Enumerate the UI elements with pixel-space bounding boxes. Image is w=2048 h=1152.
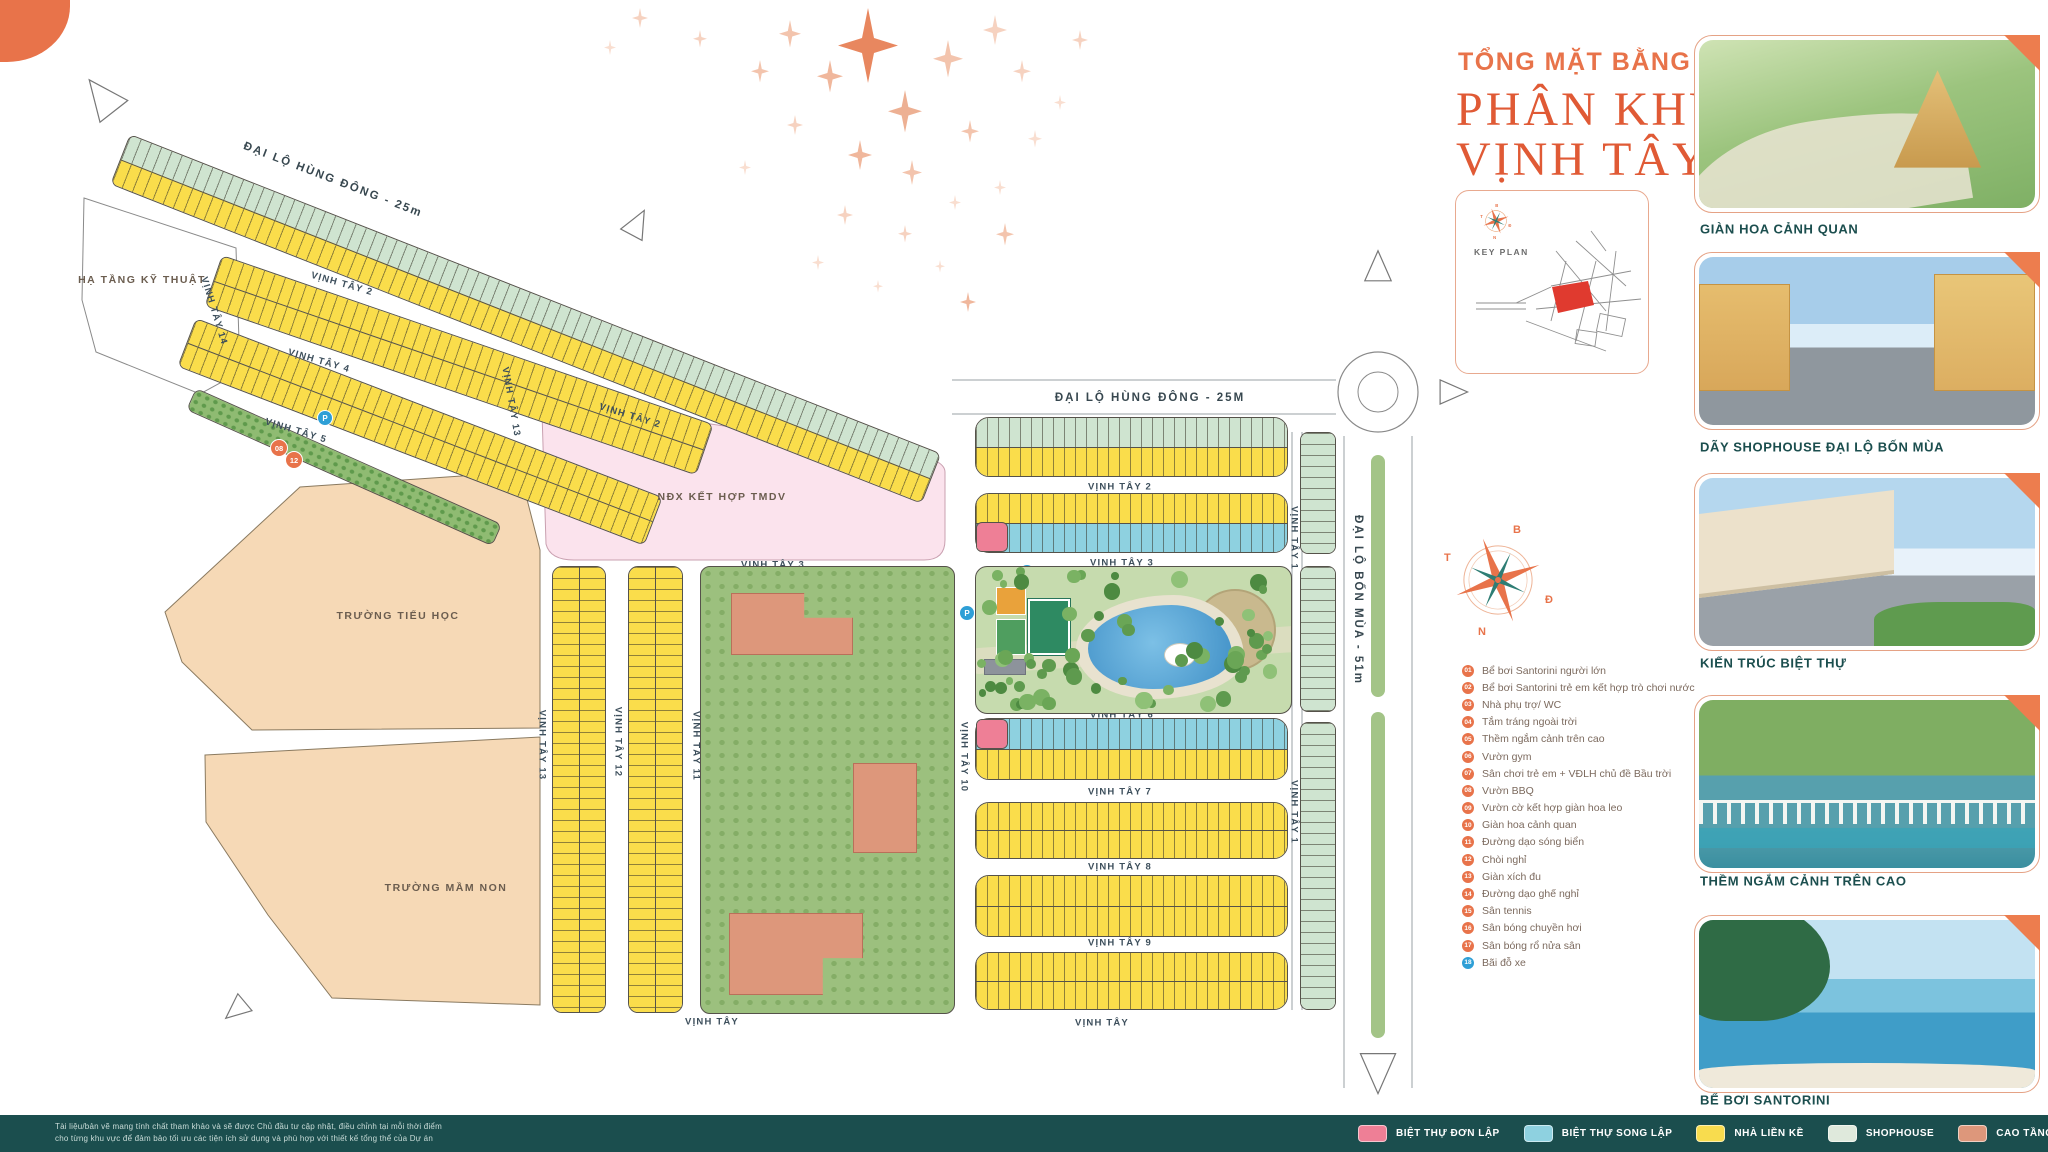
photo-caption: DÃY SHOPHOUSE ĐẠI LỘ BỐN MÙA (1700, 440, 1944, 455)
lot-type-legend-item: BIỆT THỰ SONG LẬP (1524, 1125, 1673, 1142)
key-plan-highlight (1552, 281, 1594, 313)
compass-south-label: N (1478, 626, 1486, 638)
compass-rose (1450, 532, 1546, 628)
corner-triangle-icon (2004, 252, 2040, 288)
lot-row-don (977, 720, 1007, 748)
tree-icon (1037, 669, 1047, 679)
lot-row-song (976, 523, 1287, 553)
tree-icon (1135, 692, 1153, 710)
tree-icon (1259, 585, 1267, 593)
lot-block (976, 719, 1008, 749)
tree-icon (1171, 571, 1188, 588)
street-label: VỊNH TÂY 7 (1088, 787, 1152, 798)
lot-row-lk (976, 981, 1287, 1010)
lot-type-label: NHÀ LIỀN KỀ (1734, 1128, 1803, 1139)
legend-item: 09Vườn cờ kết hợp giàn hoa leo (1462, 800, 1695, 817)
lot-type-swatch (1358, 1125, 1387, 1142)
lot-type-label: CAO TẦNG (1996, 1128, 2048, 1139)
legend-item-number: 02 (1462, 682, 1474, 694)
legend-item-label: Thềm ngắm cảnh trên cao (1482, 733, 1605, 745)
high-rise-building (731, 593, 853, 655)
tree-icon (992, 570, 1003, 581)
tree-icon (1042, 697, 1055, 710)
photo-image (1699, 257, 2035, 425)
photo-art-shape (1699, 920, 1830, 1021)
legend-item: 08Vườn BBQ (1462, 782, 1695, 799)
legend-item: 13Giàn xích đu (1462, 868, 1695, 885)
tree-icon (1263, 664, 1277, 678)
tree-icon (1118, 677, 1126, 685)
photo-card (1694, 35, 2040, 213)
corner-triangle-icon (2004, 695, 2040, 731)
legend-item: 03Nhà phụ trợ/ WC (1462, 696, 1695, 713)
lot-type-swatch (1958, 1125, 1987, 1142)
legend-item-number: 15 (1462, 905, 1474, 917)
photo-image (1699, 920, 2035, 1088)
street-label: VỊNH TÂY 2 (1088, 482, 1152, 493)
area-label: NĐX KẾT HỢP TMDV (657, 491, 786, 503)
lot-block (975, 952, 1288, 1010)
tree-icon (977, 659, 986, 668)
amenity-legend: 01Bể bơi Santorini người lớn02Bể bơi San… (1462, 662, 1695, 971)
lot-block (1300, 722, 1336, 1010)
volleyball-court (996, 587, 1026, 615)
legend-item-number: 12 (1462, 854, 1474, 866)
lot-row-lk (976, 906, 1287, 937)
tree-icon (1247, 629, 1255, 637)
legend-item: 10Giàn hoa cảnh quan (1462, 817, 1695, 834)
tree-icon (1014, 574, 1029, 589)
tree-icon (1104, 583, 1121, 600)
tree-icon (1014, 681, 1025, 692)
legend-item-number: 10 (1462, 819, 1474, 831)
legend-item-number: 11 (1462, 836, 1474, 848)
legend-item-label: Chòi nghỉ (1482, 854, 1526, 866)
compass-west-label: T (1444, 552, 1451, 564)
legend-item: 17Sân bóng rổ nửa sân (1462, 937, 1695, 954)
lot-row-lk (976, 830, 1287, 858)
tree-icon (1111, 572, 1119, 580)
lot-row-don (977, 523, 1007, 551)
legend-item-number: 13 (1462, 871, 1474, 883)
lot-row-lk (976, 494, 1287, 523)
masterplan-poster: VỊNH TÂY 2VỊNH TÂY 4VỊNH TÂY 5VỊNH TÂY 2… (0, 0, 2048, 1152)
legend-item-number: 01 (1462, 665, 1474, 677)
street-label: VỊNH TÂY 9 (1088, 938, 1152, 949)
legend-item-label: Tắm tráng ngoài trời (1482, 716, 1577, 728)
amenity-marker: 08 (270, 439, 288, 457)
lot-type-label: BIỆT THỰ ĐƠN LẬP (1396, 1128, 1500, 1139)
lot-row-lk (553, 567, 579, 1012)
tree-icon (979, 689, 987, 697)
lot-type-legend-item: NHÀ LIỀN KỀ (1696, 1125, 1803, 1142)
lot-row-sh (976, 418, 1287, 447)
lot-type-swatch (1696, 1125, 1725, 1142)
legend-item: 16Sân bóng chuyền hơi (1462, 920, 1695, 937)
tree-icon (1066, 668, 1083, 685)
lot-row-sh (1301, 433, 1335, 553)
photo-art-shape (1699, 490, 1894, 598)
basketball-court (996, 619, 1026, 655)
legend-item: 11Đường dạo sóng biển (1462, 834, 1695, 851)
photo-art-shape (1699, 800, 2035, 825)
lot-type-legend-item: SHOPHOUSE (1828, 1125, 1934, 1142)
lot-row-lk (655, 567, 682, 1012)
disclaimer-line2: cho từng khu vực để đảm bảo tối ưu các t… (55, 1134, 433, 1143)
street-label: VỊNH TÂY 8 (1088, 862, 1152, 873)
photo-card (1694, 915, 2040, 1093)
tree-icon (1242, 609, 1254, 621)
legend-item-label: Đường dạo ghế nghỉ (1482, 888, 1579, 900)
legend-item: 15Sân tennis (1462, 903, 1695, 920)
tree-icon (1262, 644, 1272, 654)
lot-block (1300, 432, 1336, 554)
tree-icon (1006, 677, 1014, 685)
tree-icon (1091, 683, 1101, 693)
photo-image (1699, 700, 2035, 868)
street-label: VỊNH TÂY (685, 1017, 739, 1028)
tree-icon (1019, 694, 1035, 710)
legend-item: 06Vườn gym (1462, 748, 1695, 765)
legend-item-number: 09 (1462, 802, 1474, 814)
legend-item: 14Đường dạo ghế nghỉ (1462, 885, 1695, 902)
poster-eyebrow-title: TỔNG MẶT BẰNG (1458, 48, 1691, 77)
legend-item-label: Bể bơi Santorini trẻ em kết hợp trò chơi… (1482, 682, 1695, 694)
road-label: ĐẠI LỘ BỐN MÙA - 51m (1352, 515, 1364, 685)
corner-triangle-icon (2004, 915, 2040, 951)
lot-row-sh (1301, 723, 1335, 1009)
lot-row-song (976, 719, 1287, 749)
legend-item-label: Giàn xích đu (1482, 871, 1541, 883)
legend-item-number: 05 (1462, 733, 1474, 745)
legend-item: 01Bể bơi Santorini người lớn (1462, 662, 1695, 679)
lot-block (975, 493, 1288, 553)
legend-item-number: 06 (1462, 751, 1474, 763)
legend-item-number: 03 (1462, 699, 1474, 711)
photo-caption: KIẾN TRÚC BIỆT THỰ (1700, 656, 1847, 671)
legend-item-number: 07 (1462, 768, 1474, 780)
lot-row-sh (1301, 567, 1335, 711)
tree-icon (1000, 580, 1008, 588)
key-plan-compass-icon: B Đ N T (1478, 201, 1514, 241)
road-label: ĐẠI LỘ HÙNG ĐÔNG - 25M (1055, 392, 1245, 404)
parking-marker: P (959, 605, 975, 621)
lot-row-lk (976, 803, 1287, 830)
lot-block (976, 522, 1008, 552)
photo-art-shape (1699, 284, 1790, 392)
tennis-court (1028, 599, 1070, 655)
area-label: TRƯỜNG TIỂU HỌC (337, 610, 460, 622)
photo-art-shape (1874, 602, 2035, 646)
street-label: VỊNH TÂY 1 (1289, 780, 1300, 844)
lot-type-legend: BIỆT THỰ ĐƠN LẬPBIỆT THỰ SONG LẬPNHÀ LIỀ… (1358, 1115, 2048, 1152)
legend-item-number: 17 (1462, 940, 1474, 952)
tree-icon (1200, 696, 1216, 712)
legend-item-label: Vườn cờ kết hợp giàn hoa leo (1482, 802, 1622, 814)
legend-item-number: 04 (1462, 716, 1474, 728)
legend-item: 18Bãi đỗ xe (1462, 954, 1695, 971)
street-label: VỊNH TÂY 12 (613, 707, 624, 778)
area-label: TRƯỜNG MẦM NON (385, 882, 508, 894)
legend-item: 02Bể bơi Santorini trẻ em kết hợp trò ch… (1462, 679, 1695, 696)
photo-art-shape (1699, 828, 2035, 848)
lot-row-lk (579, 567, 606, 1012)
photo-image (1699, 478, 2035, 646)
legend-item: 05Thềm ngắm cảnh trên cao (1462, 731, 1695, 748)
tree-icon (985, 681, 996, 692)
lot-type-swatch (1524, 1125, 1553, 1142)
poster-title-line1: PHÂN KHU (1456, 82, 1727, 137)
legend-item-label: Giàn hoa cảnh quan (1482, 819, 1577, 831)
street-label: VỊNH TÂY 13 (537, 710, 548, 781)
legend-item-label: Đường dạo sóng biển (1482, 836, 1584, 848)
photo-caption: THỀM NGẮM CẢNH TRÊN CAO (1700, 874, 1907, 889)
high-rise-building (853, 763, 917, 853)
tree-icon (1122, 624, 1134, 636)
lot-type-swatch (1828, 1125, 1857, 1142)
svg-text:N: N (1493, 235, 1496, 240)
lot-block (975, 802, 1288, 859)
legend-item-label: Bể bơi Santorini người lớn (1482, 665, 1606, 677)
legend-item-label: Sân bóng chuyền hơi (1482, 922, 1582, 934)
tree-icon (995, 682, 1007, 694)
photo-caption: GIÀN HOA CẢNH QUAN (1700, 222, 1858, 237)
tree-icon (1067, 570, 1080, 583)
amenity-marker: 12 (285, 451, 303, 469)
lot-type-label: SHOPHOUSE (1866, 1128, 1934, 1139)
photo-art-shape (1934, 274, 2035, 392)
street-label: VỊNH TÂY (1075, 1018, 1129, 1029)
legend-item: 12Chòi nghỉ (1462, 851, 1695, 868)
street-label: VỊNH TÂY 1 (1289, 506, 1300, 570)
svg-text:T: T (1480, 214, 1483, 219)
lot-block (975, 718, 1288, 780)
lot-type-legend-item: CAO TẦNG (1958, 1125, 2048, 1142)
legend-item-label: Bãi đỗ xe (1482, 957, 1526, 969)
legend-item-label: Vườn gym (1482, 751, 1532, 763)
legend-item-number: 14 (1462, 888, 1474, 900)
photo-art-shape (1699, 1063, 2035, 1088)
tree-icon (1216, 691, 1232, 707)
legend-item-label: Sân bóng rổ nửa sân (1482, 940, 1581, 952)
compass-east-label: Đ (1545, 594, 1553, 606)
lot-type-legend-item: BIỆT THỰ ĐƠN LẬP (1358, 1125, 1500, 1142)
tree-icon (982, 600, 997, 615)
legend-item: 04Tắm tráng ngoài trời (1462, 714, 1695, 731)
street-label: VỊNH TÂY 10 (959, 722, 970, 793)
tree-icon (1062, 607, 1076, 621)
high-rise-building (729, 913, 863, 995)
corner-triangle-icon (2004, 473, 2040, 509)
lot-block (975, 875, 1288, 937)
legend-item-label: Nhà phụ trợ/ WC (1482, 699, 1561, 711)
lot-row-lk (629, 567, 655, 1012)
legend-item-label: Sân tennis (1482, 905, 1532, 917)
corner-triangle-icon (2004, 35, 2040, 71)
legend-item-number: 16 (1462, 922, 1474, 934)
key-plan-label: KEY PLAN (1474, 247, 1529, 257)
area-label: HẠ TẦNG KỸ THUẬT (78, 274, 206, 286)
lot-block (1300, 566, 1336, 712)
lot-row-lk (976, 876, 1287, 906)
svg-text:B: B (1495, 203, 1498, 208)
tree-icon (1065, 648, 1079, 662)
svg-text:Đ: Đ (1508, 223, 1511, 228)
photo-image (1699, 40, 2035, 208)
lot-row-lk (976, 447, 1287, 477)
lot-row-lk (976, 953, 1287, 981)
photo-card (1694, 695, 2040, 873)
lot-type-label: BIỆT THỰ SONG LẬP (1562, 1128, 1673, 1139)
poster-title-line2: VỊNH TÂY (1456, 132, 1710, 187)
legend-item-number: 18 (1462, 957, 1474, 969)
footer-bar: Tài liệu/bản vẽ mang tính chất tham khảo… (0, 1115, 2048, 1152)
legend-item-number: 08 (1462, 785, 1474, 797)
key-plan-box: B Đ N T KEY PLAN (1455, 190, 1649, 374)
photo-card (1694, 473, 2040, 651)
lot-block (628, 566, 683, 1013)
lot-block (975, 417, 1288, 477)
legend-item-label: Sân chơi trẻ em + VĐLH chủ đề Bầu trời (1482, 768, 1671, 780)
central-amenity-park (975, 566, 1292, 714)
photo-caption: BỂ BƠI SANTORINI (1700, 1093, 1830, 1108)
lot-row-lk (976, 749, 1287, 780)
cao-tang-zone (700, 566, 955, 1014)
compass-north-label: B (1513, 524, 1521, 536)
disclaimer-line1: Tài liệu/bản vẽ mang tính chất tham khảo… (55, 1122, 442, 1131)
tree-icon (1235, 671, 1247, 683)
tree-icon (1163, 685, 1174, 696)
legend-item: 07Sân chơi trẻ em + VĐLH chủ đề Bầu trời (1462, 765, 1695, 782)
legend-item-label: Vườn BBQ (1482, 785, 1534, 797)
lot-block (552, 566, 606, 1013)
parking-marker: P (317, 410, 333, 426)
photo-card (1694, 252, 2040, 430)
